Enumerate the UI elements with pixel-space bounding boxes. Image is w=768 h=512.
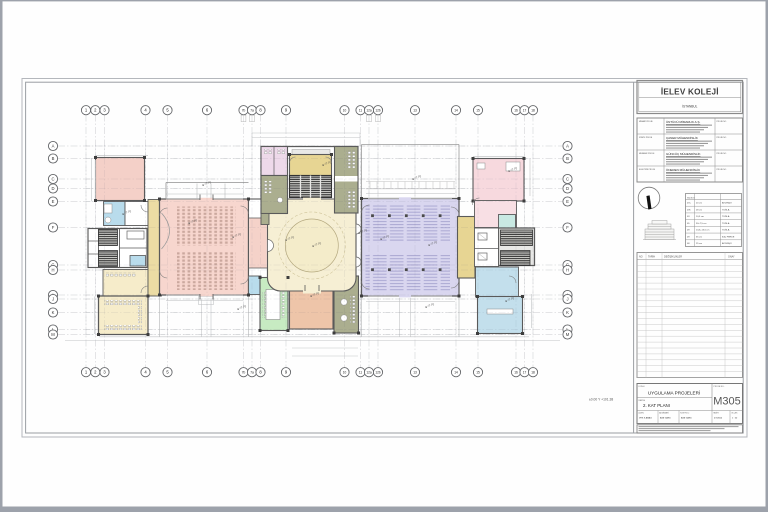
svg-text:ASB GARD: ASB GARD (681, 417, 692, 420)
svg-text:12a: 12a (366, 371, 372, 375)
svg-text:35 cm: 35 cm (696, 236, 702, 238)
svg-text:K: K (52, 310, 55, 315)
svg-text:10,5 cm: 10,5 cm (696, 216, 704, 218)
svg-text:İSTANBUL: İSTANBUL (682, 104, 698, 109)
svg-text:KONU:: KONU: (639, 386, 646, 388)
svg-text:B: B (52, 156, 55, 161)
svg-text:11: 11 (359, 109, 363, 113)
svg-text:17: 17 (523, 371, 527, 375)
svg-text:PROJE NO: PROJE NO (717, 121, 727, 123)
svg-text:15: 15 (476, 371, 480, 375)
svg-text:D: D (566, 186, 569, 191)
svg-text:7b: 7b (242, 109, 246, 113)
svg-text:ÜNTÜCÜ MİMARLIK A.Ş.: ÜNTÜCÜ MİMARLIK A.Ş. (666, 119, 701, 124)
svg-text:13,5+13,5 cm: 13,5+13,5 cm (696, 230, 709, 232)
svg-text:20 cm: 20 cm (696, 203, 702, 205)
svg-text:C: C (566, 176, 569, 181)
svg-text:PAFTA:: PAFTA: (639, 399, 646, 402)
svg-text:İELEV KOLEJİ: İELEV KOLEJİ (661, 87, 719, 97)
svg-text:17: 17 (523, 109, 527, 113)
svg-text:28 cm: 28 cm (696, 209, 702, 211)
svg-text:PROJE NO: PROJE NO (717, 137, 727, 139)
svg-text:PROJE NO:: PROJE NO: (714, 386, 725, 388)
svg-text:7a: 7a (250, 109, 254, 113)
svg-text:B.A. PERDE: B.A. PERDE (722, 235, 735, 238)
svg-text:H: H (51, 267, 54, 272)
svg-text:12b: 12b (375, 371, 381, 375)
svg-text:10: 10 (343, 109, 347, 113)
svg-text:10: 10 (343, 371, 347, 375)
svg-text:12a: 12a (366, 109, 372, 113)
svg-text:B: B (566, 156, 569, 161)
svg-text:16: 16 (514, 371, 518, 375)
svg-text:C: C (51, 176, 54, 181)
svg-text:ÖNEREN MÜHENDİSLİK: ÖNEREN MÜHENDİSLİK (666, 167, 700, 172)
svg-text:30+7,5 cm: 30+7,5 cm (696, 223, 706, 225)
svg-text:AB MİMARİ:: AB MİMARİ: (659, 412, 669, 415)
svg-text:A: A (52, 143, 55, 148)
svg-text:4/7/2000: 4/7/2000 (714, 418, 723, 420)
svg-text:A: A (566, 143, 569, 148)
svg-text:M: M (51, 332, 55, 337)
svg-text:E: E (566, 199, 569, 204)
svg-text:7b: 7b (242, 371, 246, 375)
svg-text:ELEKTRİK PROJE: ELEKTRİK PROJE (639, 168, 656, 171)
svg-text:11: 11 (359, 371, 363, 375)
svg-text:K: K (566, 310, 569, 315)
svg-text:NO: NO (639, 256, 643, 259)
svg-text:ASB GARD: ASB GARD (660, 417, 671, 420)
svg-text:UYGULAMA PROJELERİ: UYGULAMA PROJELERİ (648, 390, 700, 396)
svg-text:VHS S.AMAS: VHS S.AMAS (639, 417, 652, 420)
svg-text:13: 13 (413, 109, 417, 113)
svg-text:E: E (52, 199, 55, 204)
svg-text:14: 14 (454, 109, 458, 113)
svg-text:F: F (52, 225, 55, 230)
svg-text:KONTROL:: KONTROL: (680, 413, 690, 415)
svg-text:PROJE NO: PROJE NO (717, 153, 727, 155)
svg-text:TARİH: TARİH (648, 256, 655, 259)
svg-text:±0.00 Y +101.38: ±0.00 Y +101.38 (589, 398, 613, 402)
svg-text:D: D (51, 186, 54, 191)
svg-text:AYDINŞÖ: AYDINŞÖ (722, 242, 732, 245)
svg-text:TUĞLA: TUĞLA (722, 208, 730, 211)
svg-text:15: 15 (476, 109, 480, 113)
svg-text:TARİH:: TARİH: (713, 412, 719, 415)
svg-text:J: J (52, 296, 54, 301)
svg-text:18: 18 (531, 371, 535, 375)
svg-text:J: J (566, 296, 568, 301)
svg-text:16: 16 (514, 109, 518, 113)
svg-text:ONAY: ONAY (728, 256, 735, 259)
svg-text:25 cm: 25 cm (696, 243, 702, 245)
svg-text:STATİK PROJE: STATİK PROJE (639, 136, 653, 139)
svg-text:DEĞİŞİKLİKLER: DEĞİŞİKLİKLER (664, 256, 682, 259)
svg-text:7a: 7a (250, 371, 254, 375)
svg-text:12b: 12b (375, 109, 381, 113)
svg-text:PROJE NO: PROJE NO (717, 169, 727, 171)
svg-text:ÇANER MÜHENDİSLİK: ÇANER MÜHENDİSLİK (666, 135, 698, 140)
svg-text:18: 18 (531, 109, 535, 113)
svg-text:TUĞLA: TUĞLA (722, 215, 730, 218)
svg-text:TUĞLA: TUĞLA (722, 222, 730, 225)
svg-text:MİMARİ PROJE: MİMARİ PROJE (639, 120, 653, 123)
svg-text:H: H (566, 267, 569, 272)
svg-text:14: 14 (454, 371, 458, 375)
svg-text:2. KAT PLANI: 2. KAT PLANI (643, 403, 670, 408)
svg-text:ÇİZEN:: ÇİZEN: (638, 412, 644, 415)
svg-text:13: 13 (413, 371, 417, 375)
svg-text:GÜNCÜÇ MÜHENDİSLİK: GÜNCÜÇ MÜHENDİSLİK (666, 151, 701, 156)
svg-text:MEKANİK PROJE: MEKANİK PROJE (639, 152, 655, 155)
svg-text:1 : 50: 1 : 50 (732, 418, 738, 420)
svg-text:AYDINŞÖ: AYDINŞÖ (722, 202, 732, 205)
svg-text:M305: M305 (713, 396, 741, 408)
svg-text:ÖLÇEK:: ÖLÇEK: (731, 412, 738, 415)
svg-text:M: M (566, 332, 570, 337)
svg-text:TUĞLA: TUĞLA (722, 229, 730, 232)
svg-text:F: F (566, 225, 569, 230)
